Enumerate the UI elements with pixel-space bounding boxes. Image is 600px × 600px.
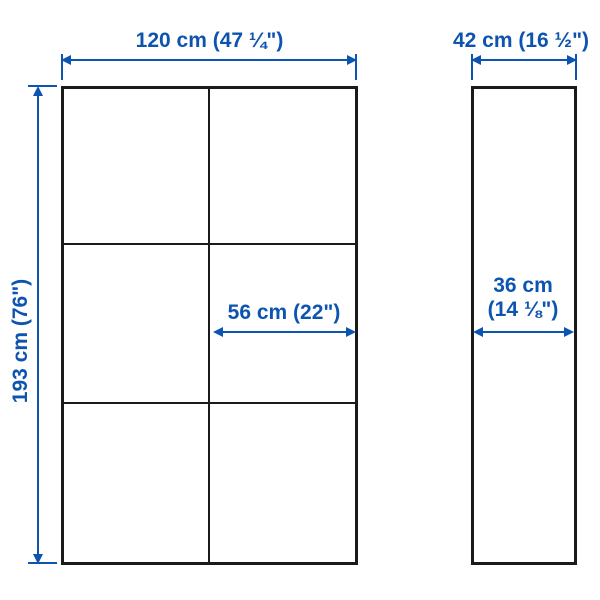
front-view-horizontal-divider-lower	[64, 402, 355, 404]
front-view-horizontal-divider-upper	[64, 243, 355, 245]
extension-line	[355, 54, 357, 80]
side-width-label: 42 cm (16 ½")	[421, 29, 600, 53]
arrow-right-head-icon	[346, 327, 356, 337]
extension-line	[28, 562, 57, 564]
arrow-right-head-icon	[564, 327, 574, 337]
side-depth-arrow	[473, 324, 574, 340]
extension-line	[575, 54, 577, 80]
front-width-arrow	[61, 52, 357, 68]
front-width-label: 120 cm (47 ¼")	[61, 29, 358, 53]
extension-line	[28, 85, 57, 87]
arrow-line	[66, 59, 352, 61]
side-depth-label-line2: (14 ⅛")	[488, 298, 559, 321]
side-depth-label: 36 cm (14 ⅛")	[448, 274, 598, 322]
door-width-arrow	[213, 324, 356, 340]
arrow-line	[476, 59, 572, 61]
side-width-arrow	[471, 52, 577, 68]
front-view-vertical-divider	[208, 89, 210, 562]
side-depth-label-line1: 36 cm	[493, 274, 553, 297]
arrow-line	[37, 91, 39, 559]
door-width-label: 56 cm (22")	[211, 301, 357, 325]
arrow-line	[218, 331, 351, 333]
extension-line	[471, 54, 473, 80]
arrow-line	[478, 331, 569, 333]
front-height-arrow	[30, 86, 46, 564]
dimension-diagram: 120 cm (47 ¼") 42 cm (16 ½") 193 cm (76"…	[0, 0, 600, 600]
extension-line	[61, 54, 63, 80]
